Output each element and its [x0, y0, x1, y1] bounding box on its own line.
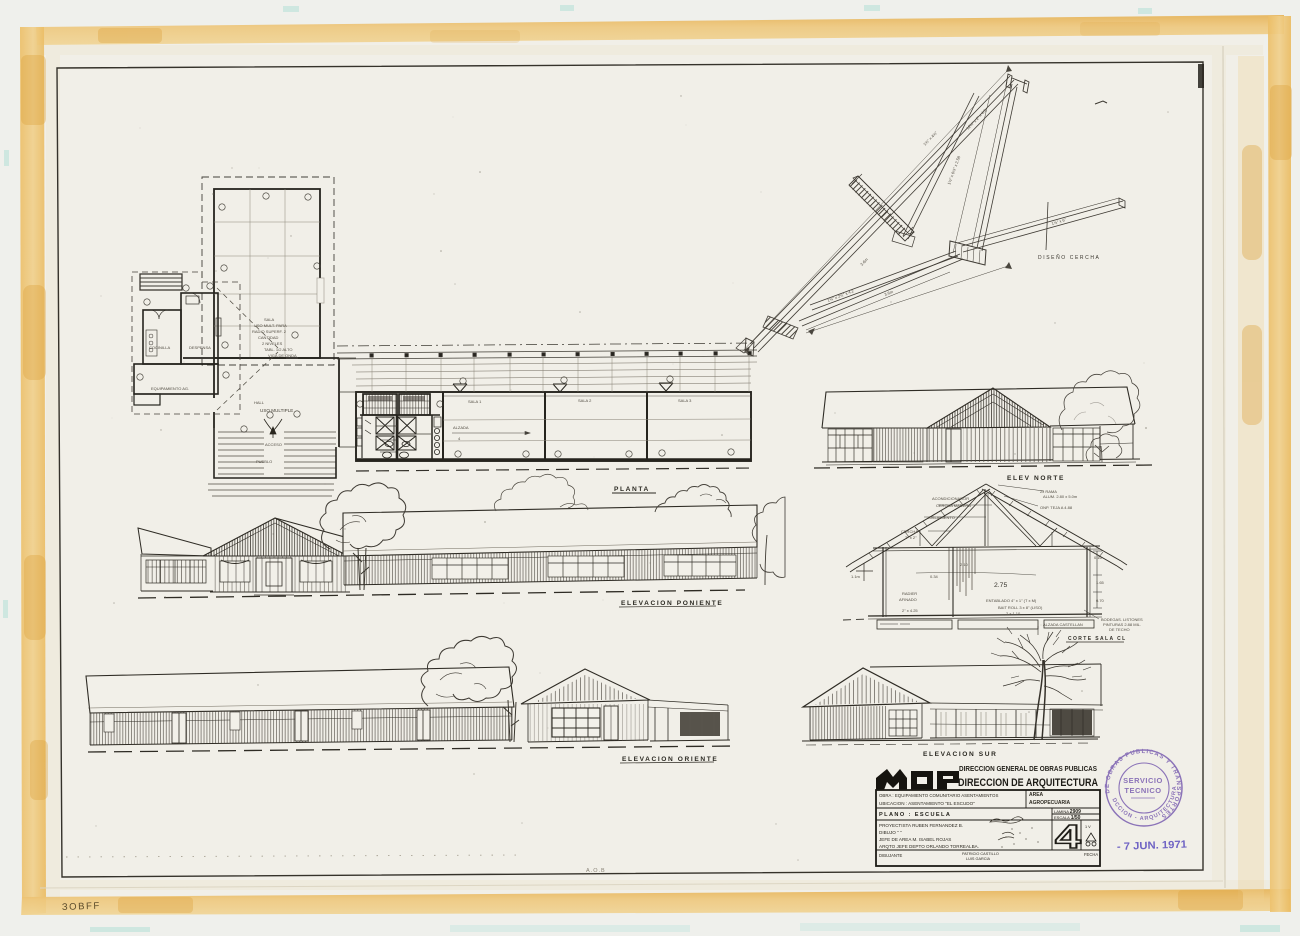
svg-text:PLANO : ESCUELA: PLANO : ESCUELA — [879, 812, 951, 818]
svg-text:1.65: 1.65 — [1096, 580, 1105, 585]
svg-text:UBICACION : ASENTAMIENTO "EL: UBICACION : ASENTAMIENTO "EL ESCUDO" — [879, 801, 975, 806]
svg-text:DIBUJANTE: DIBUJANTE — [879, 853, 902, 858]
svg-text:SALA 2: SALA 2 — [578, 398, 592, 403]
svg-text:AFINADO: AFINADO — [899, 597, 917, 602]
svg-text:CORTE SALA CL: CORTE SALA CL — [1068, 636, 1127, 642]
svg-text:CERCHA MADERA: CERCHA MADERA — [936, 503, 971, 508]
svg-text:BAIT ROLL 3 x 8" (LISO): BAIT ROLL 3 x 8" (LISO) — [998, 605, 1043, 610]
svg-text:1 V: 1 V — [1085, 825, 1091, 829]
svg-text:COCINILLA: COCINILLA — [149, 345, 170, 350]
svg-text:DISEÑO CERCHA: DISEÑO CERCHA — [1038, 254, 1100, 261]
svg-text:EQUIPAMIENTO AG.: EQUIPAMIENTO AG. — [151, 386, 189, 391]
svg-text:LUIS GARCIA: LUIS GARCIA — [966, 857, 991, 861]
svg-text:ЗОВFF: ЗОВFF — [62, 901, 101, 913]
svg-text:RADIER: RADIER — [902, 591, 917, 596]
svg-text:2.10: 2.10 — [960, 562, 969, 567]
svg-text:DESPENSA: DESPENSA — [189, 345, 211, 350]
svg-text:AREA: AREA — [1029, 792, 1044, 798]
svg-text:USO MULT. PARA: USO MULT. PARA — [254, 323, 287, 328]
svg-text:2 x 1.10: 2 x 1.10 — [1006, 611, 1021, 616]
svg-text:DIRECCION GENERAL DE OBRAS: DIRECCION GENERAL DE OBRAS PUBLICAS — [959, 766, 1097, 773]
svg-text:PUEBLO: PUEBLO — [256, 459, 272, 464]
svg-text:CANTIDAD: CANTIDAD — [258, 335, 279, 340]
svg-text:SALA 1: SALA 1 — [468, 399, 482, 404]
svg-text:JEFE DE AREA M. ISABEL: JEFE DE AREA M. ISABEL ROJAS — [879, 837, 951, 842]
svg-text:DIBUJO ": DIBUJO " " — [879, 830, 902, 835]
svg-text:4: 4 — [1055, 818, 1082, 855]
svg-text:CERCHA: CERCHA — [901, 529, 918, 534]
svg-text:USO MULTIPLE: USO MULTIPLE — [260, 408, 293, 413]
svg-text:OBRA : EQUIPAMIENTO COMUNITAR: OBRA : EQUIPAMIENTO COMUNITARIO ASENTAMI… — [879, 793, 998, 798]
svg-text:HALL: HALL — [254, 400, 265, 405]
svg-text:AISLAMIENTO: AISLAMIENTO — [928, 515, 955, 520]
svg-text:DE TECHO: DE TECHO — [1109, 627, 1130, 632]
svg-text:ONP. TEJA A 4.88: ONP. TEJA A 4.88 — [1040, 505, 1073, 510]
svg-text:1.1m: 1.1m — [851, 574, 861, 579]
svg-text:ENTABLADO 4" x 1" (T x M): ENTABLADO 4" x 1" (T x M) — [986, 598, 1037, 603]
svg-text:0.34: 0.34 — [930, 574, 939, 579]
svg-text:VIGA DE ONDA: VIGA DE ONDA — [268, 353, 297, 358]
svg-text:SERVICIO: SERVICIO — [1123, 776, 1163, 785]
svg-text:2.75: 2.75 — [994, 582, 1007, 589]
svg-text:2 NIVELES: 2 NIVELES — [262, 341, 283, 346]
svg-text:2" x 2": 2" x 2" — [905, 535, 917, 540]
svg-text:PROYECTISTA RUBEN FERNAND: PROYECTISTA RUBEN FERNANDEZ B. — [879, 823, 963, 828]
svg-text:TECNICO: TECNICO — [1124, 786, 1161, 795]
svg-text:ACONDICIONADOR: ACONDICIONADOR — [932, 496, 969, 501]
svg-text:0.16: 0.16 — [1094, 555, 1103, 560]
svg-text:FECHA: FECHA — [1084, 852, 1098, 857]
svg-text:ARQTO JEFE DEPTO ORLANDO TO: ARQTO JEFE DEPTO ORLANDO TORREALBA. — [879, 844, 979, 849]
svg-text:- 7 JUN. 1971: - 7 JUN. 1971 — [1117, 839, 1188, 853]
svg-text:ALZADA: ALZADA — [453, 425, 469, 430]
svg-text:SALA 3: SALA 3 — [678, 398, 692, 403]
svg-text:ALZADA CASTELLAN: ALZADA CASTELLAN — [1043, 622, 1083, 627]
svg-text:AGROPECUARIA: AGROPECUARIA — [1029, 800, 1071, 806]
svg-text:2" x 4.25: 2" x 4.25 — [902, 608, 918, 613]
svg-text:TABL. 1/2 ALTO: TABL. 1/2 ALTO — [264, 347, 292, 352]
svg-text:ACCESO: ACCESO — [265, 442, 282, 447]
svg-text:0.70: 0.70 — [1096, 598, 1105, 603]
svg-text:DIRECCION DE ARQUITECTURA: DIRECCION DE ARQUITECTURA — [958, 777, 1098, 789]
svg-text:ELEV NORTE: ELEV NORTE — [1007, 475, 1065, 482]
svg-text:ALUM. 2.80 x 5.0m: ALUM. 2.80 x 5.0m — [1043, 494, 1078, 499]
svg-text:PATRICIO CASTILLO: PATRICIO CASTILLO — [962, 852, 999, 856]
svg-text:PLANTA: PLANTA — [614, 486, 650, 493]
svg-text:ELEVACION SUR: ELEVACION SUR — [923, 751, 998, 758]
svg-text:SALA: SALA — [264, 317, 275, 322]
svg-text:RADIO SUPERF. 2: RADIO SUPERF. 2 — [252, 329, 287, 334]
